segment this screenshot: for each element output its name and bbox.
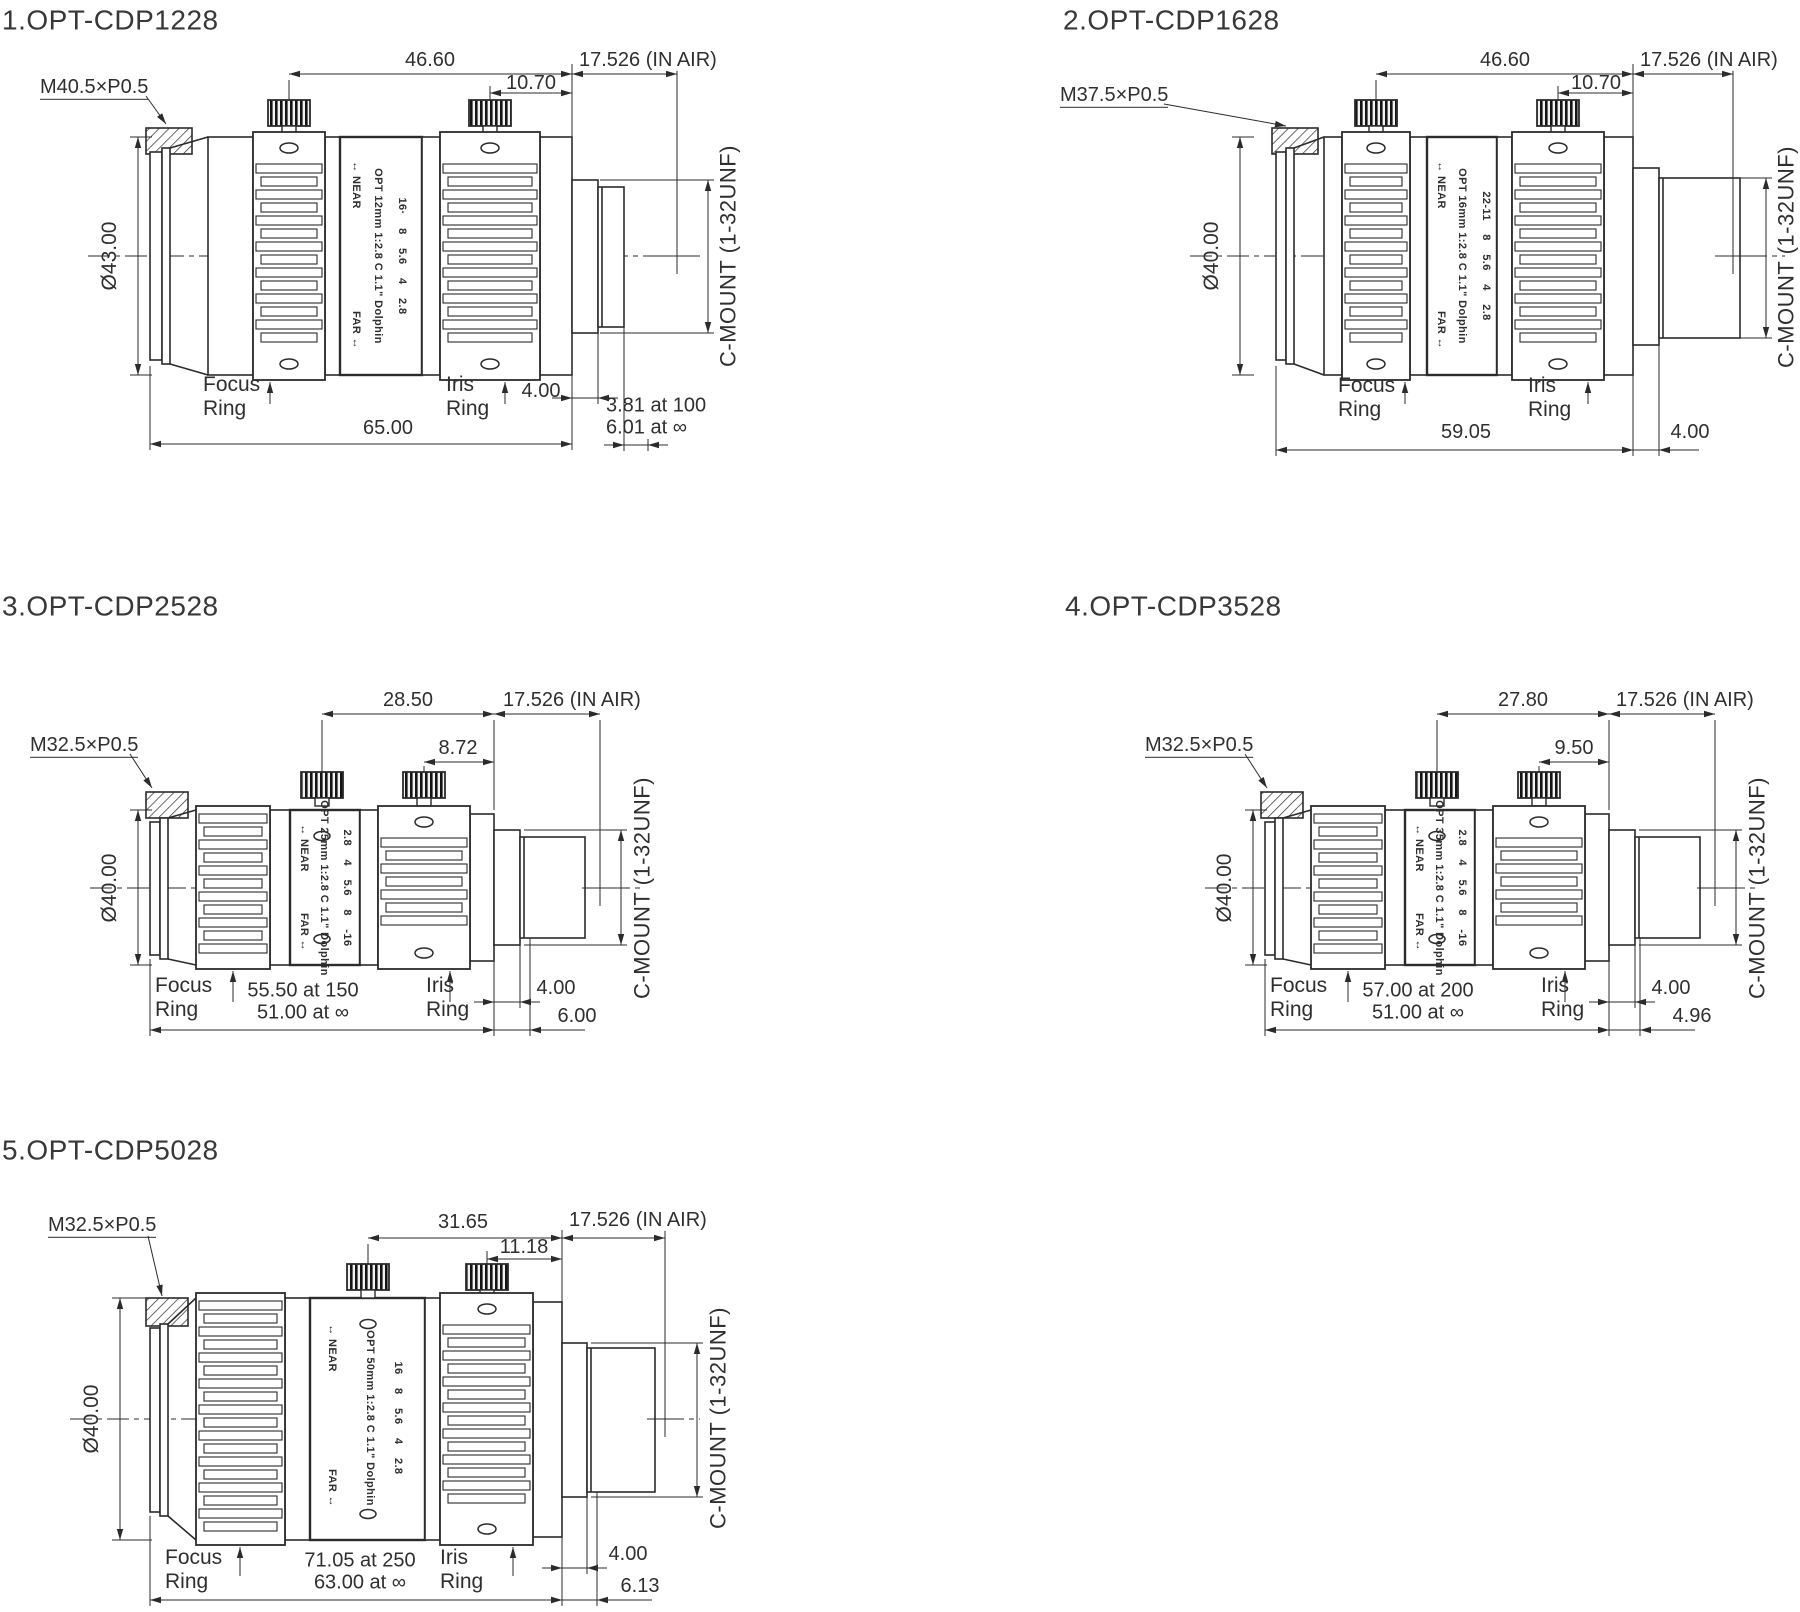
barrel-model-label: OPT 35mm 1:2.8 C 1.1" Dolphin (1433, 800, 1445, 976)
lens-title: 5.OPT-CDP5028 (2, 1134, 219, 1165)
focus-ring-label: Focus Ring (1270, 974, 1327, 1022)
barrel-near-label: ↔ NEAR (1435, 161, 1447, 209)
dim-length: 55.50 at 150 51.00 at ∞ (247, 980, 358, 1025)
barrel-aperture-scale: 22-11 8 5.6 4 2.8 (1480, 191, 1492, 320)
barrel-far-label: FAR ↔ (298, 913, 310, 951)
barrel-near-label: ↔ NEAR (1413, 824, 1425, 872)
diameter-label: Ø40.00 (1213, 854, 1237, 923)
lens-diagram-4: 4.OPT-CDP3528 M32.5×P0.5 Ø40.00 27.80 9.… (1000, 560, 1800, 1052)
iris-ring-label: Iris Ring (446, 373, 489, 421)
dim-top-main: 46.60 (405, 49, 455, 71)
cmount-label: C-MOUNT (1-32UNF) (1775, 146, 1800, 368)
cmount-label: C-MOUNT (1-32UNF) (717, 145, 742, 367)
lens-diagram-2: 2.OPT-CDP1628 M37.5×P0.5 Ø40.00 46.60 10… (1040, 0, 1800, 470)
lens-drawing (0, 1120, 780, 1612)
barrel-model-label: OPT 12mm 1:2.8 C 1.1" Dolphin (372, 168, 384, 344)
dim-back-a: 4.00 (522, 380, 561, 402)
dim-in-air: 17.526 (IN AIR) (500, 689, 644, 711)
dim-in-air: 17.526 (IN AIR) (1613, 689, 1757, 711)
dim-back-b: 6.13 (621, 1575, 660, 1597)
dim-top-main: 27.80 (1498, 689, 1548, 711)
drawing-sheet: 1.OPT-CDP1228 M40.5×P0.5 Ø43.00 46.60 10… (0, 0, 1800, 1612)
dim-length: 59.05 (1441, 421, 1491, 443)
lens-title: 2.OPT-CDP1628 (1063, 4, 1280, 35)
thread-label: M37.5×P0.5 (1060, 84, 1168, 108)
dim-top-main: 28.50 (383, 689, 433, 711)
iris-ring-label: Iris Ring (1528, 374, 1571, 422)
lens-diagram-3: 3.OPT-CDP2528 M32.5×P0.5 Ø40.00 28.50 8.… (0, 560, 720, 1052)
barrel-model-label: OPT 25mm 1:2.8 C 1.1" Dolphin (318, 800, 330, 976)
barrel-far-label: FAR ↔ (1413, 913, 1425, 951)
focus-ring-label: Focus Ring (155, 974, 212, 1022)
cmount-label: C-MOUNT (1-32UNF) (707, 1307, 732, 1529)
dim-back-a: 4.00 (537, 977, 576, 999)
barrel-aperture-scale: 16· 8 5.6 4 2.8 (396, 198, 408, 315)
thread-label: M32.5×P0.5 (1145, 734, 1253, 758)
barrel-far-label: FAR ↔ (350, 311, 362, 349)
dim-length: 71.05 at 250 63.00 at ∞ (304, 1550, 415, 1595)
barrel-far-label: FAR ↔ (326, 1469, 338, 1507)
barrel-near-label: ↔ NEAR (350, 161, 362, 209)
dim-back-a: 4.00 (609, 1543, 648, 1565)
dim-back-a: 4.00 (1671, 421, 1710, 443)
cmount-label: C-MOUNT (1-32UNF) (1746, 777, 1771, 999)
iris-ring-label: Iris Ring (1541, 974, 1584, 1022)
thread-label: M40.5×P0.5 (40, 76, 148, 100)
iris-ring-label: Iris Ring (426, 974, 469, 1022)
iris-ring-label: Iris Ring (440, 1546, 483, 1594)
barrel-near-label: ↔ NEAR (326, 1324, 338, 1372)
thread-label: M32.5×P0.5 (30, 734, 138, 758)
dim-length: 57.00 at 200 51.00 at ∞ (1362, 980, 1473, 1025)
dim-top-main: 31.65 (438, 1211, 488, 1233)
lens-title: 4.OPT-CDP3528 (1065, 590, 1282, 621)
barrel-model-label: OPT 16mm 1:2.8 C 1.1" Dolphin (1456, 168, 1468, 344)
dim-back-a: 4.00 (1652, 977, 1691, 999)
dim-top-sub: 10.70 (506, 72, 556, 94)
focus-ring-label: Focus Ring (165, 1546, 222, 1594)
barrel-aperture-scale: 16 8 5.6 4 2.8 (392, 1362, 404, 1475)
cmount-label: C-MOUNT (1-32UNF) (631, 777, 656, 999)
dim-top-sub: 9.50 (1555, 737, 1594, 759)
dim-in-air: 17.526 (IN AIR) (566, 1209, 710, 1231)
barrel-aperture-scale: 2.8 4 5.6 8 -16 (341, 830, 353, 947)
dim-back-b: 3.81 at 100 6.01 at ∞ (606, 395, 706, 440)
focus-ring-label: Focus Ring (203, 373, 260, 421)
lens-diagram-1: 1.OPT-CDP1228 M40.5×P0.5 Ø43.00 46.60 10… (0, 0, 800, 470)
dim-top-sub: 11.18 (500, 1236, 549, 1258)
dim-top-sub: 8.72 (439, 737, 478, 759)
lens-diagram-5: 5.OPT-CDP5028 M32.5×P0.5 Ø40.00 31.65 11… (0, 1120, 780, 1612)
barrel-aperture-scale: 2.8 4 5.6 8 -16 (1456, 830, 1468, 947)
barrel-near-label: ↔ NEAR (298, 824, 310, 872)
focus-ring-label: Focus Ring (1338, 374, 1395, 422)
dim-in-air: 17.526 (IN AIR) (576, 49, 720, 71)
thread-label: M32.5×P0.5 (48, 1214, 156, 1238)
barrel-far-label: FAR ↔ (1435, 311, 1447, 349)
barrel-model-label: OPT 50mm 1:2.8 C 1.1" Dolphin (364, 1330, 376, 1506)
dim-in-air: 17.526 (IN AIR) (1637, 49, 1781, 71)
dim-back-b: 4.96 (1673, 1005, 1712, 1027)
dim-top-main: 46.60 (1480, 49, 1530, 71)
lens-title: 3.OPT-CDP2528 (2, 590, 219, 621)
dim-back-b: 6.00 (558, 1005, 597, 1027)
dim-length: 65.00 (363, 417, 413, 439)
lens-title: 1.OPT-CDP1228 (2, 4, 219, 35)
diameter-label: Ø40.00 (1200, 222, 1224, 291)
lens-drawing (0, 560, 720, 1052)
diameter-label: Ø43.00 (98, 222, 122, 291)
dim-top-sub: 10.70 (1571, 72, 1621, 94)
diameter-label: Ø40.00 (98, 854, 122, 923)
diameter-label: Ø40.00 (80, 1385, 104, 1454)
